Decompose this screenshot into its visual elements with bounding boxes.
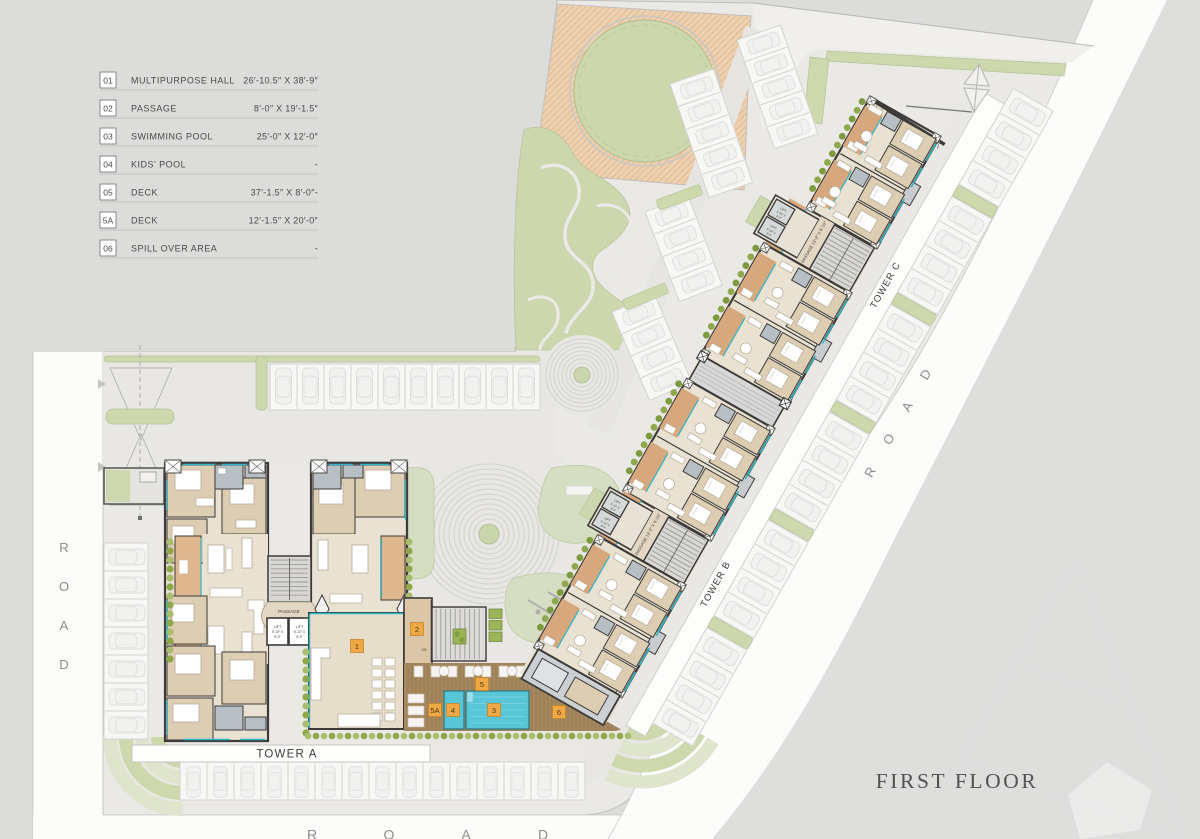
svg-text:DN: DN <box>422 648 427 652</box>
svg-text:KIDS’ POOL: KIDS’ POOL <box>131 160 186 170</box>
svg-text:5: 5 <box>480 680 484 689</box>
svg-text:O: O <box>59 579 69 594</box>
svg-text:A: A <box>60 618 69 633</box>
svg-text:SPILL OVER AREA: SPILL OVER AREA <box>131 244 217 254</box>
svg-text:PASSAGE: PASSAGE <box>131 104 177 114</box>
svg-text:TOWER A: TOWER A <box>256 749 317 761</box>
svg-text:03: 03 <box>103 132 113 142</box>
svg-text:A: A <box>461 827 471 839</box>
svg-text:37′-1.5″ X 8′-0″-: 37′-1.5″ X 8′-0″- <box>251 188 318 198</box>
svg-text:04: 04 <box>103 160 113 170</box>
svg-text:8′-0″: 8′-0″ <box>296 635 303 639</box>
svg-text:FIRST FLOOR: FIRST FLOOR <box>876 769 1039 793</box>
svg-text:6: 6 <box>557 708 561 717</box>
svg-text:R: R <box>307 827 317 839</box>
svg-text:-: - <box>315 160 318 170</box>
svg-text:5′-10″ X: 5′-10″ X <box>294 630 306 634</box>
svg-text:D: D <box>538 827 548 839</box>
svg-text:D: D <box>59 657 68 672</box>
svg-text:DECK: DECK <box>131 216 158 226</box>
svg-text:25′-0″ X 12′-0″: 25′-0″ X 12′-0″ <box>257 132 319 142</box>
svg-text:8′-0″ X 19′-1.5″: 8′-0″ X 19′-1.5″ <box>254 104 319 114</box>
svg-text:LIFT: LIFT <box>274 625 282 629</box>
svg-text:PASSAGE: PASSAGE <box>278 609 300 614</box>
svg-text:4: 4 <box>451 706 455 715</box>
svg-text:01: 01 <box>103 76 113 86</box>
svg-text:R: R <box>59 540 68 555</box>
svg-text:05: 05 <box>103 188 113 198</box>
svg-text:5′-10″ X: 5′-10″ X <box>272 630 284 634</box>
svg-text:3: 3 <box>492 706 496 715</box>
svg-text:DECK: DECK <box>131 188 158 198</box>
svg-text:LIFT: LIFT <box>296 625 304 629</box>
svg-text:SWIMMING POOL: SWIMMING POOL <box>131 132 213 142</box>
svg-text:O: O <box>384 827 395 839</box>
svg-text:06: 06 <box>103 244 113 254</box>
svg-text:02: 02 <box>103 104 113 114</box>
svg-text:-: - <box>315 244 318 254</box>
svg-text:5A: 5A <box>103 216 114 226</box>
svg-text:5A: 5A <box>430 706 439 715</box>
svg-text:2: 2 <box>415 625 419 634</box>
svg-text:26′-10.5″ X 38′-9″: 26′-10.5″ X 38′-9″ <box>243 76 318 86</box>
svg-text:8′-0″: 8′-0″ <box>274 635 281 639</box>
svg-text:12′-1.5″ X 20′-0″: 12′-1.5″ X 20′-0″ <box>249 216 319 226</box>
svg-text:MULTIPURPOSE HALL: MULTIPURPOSE HALL <box>131 76 235 86</box>
svg-text:1: 1 <box>355 642 359 651</box>
